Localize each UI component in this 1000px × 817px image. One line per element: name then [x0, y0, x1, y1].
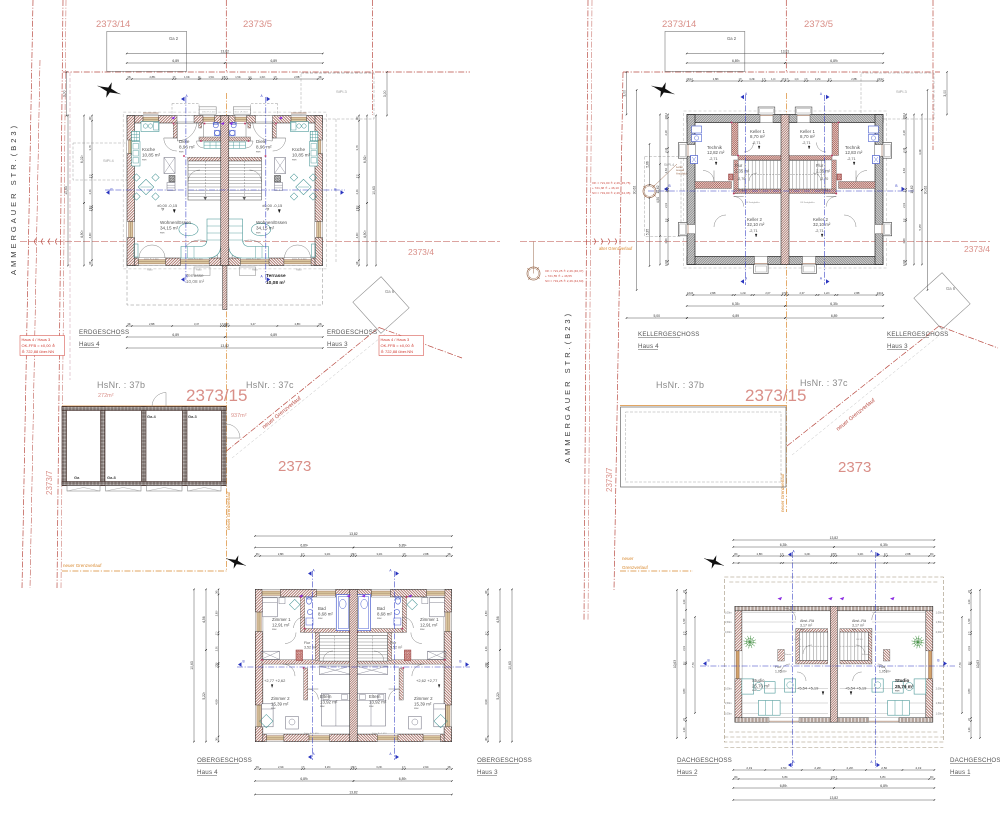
svg-text:Haus 3: Haus 3 — [477, 769, 498, 776]
svg-text:10,63: 10,63 — [64, 186, 68, 195]
svg-text:1,21¹: 1,21¹ — [968, 727, 971, 733]
svg-text:24|12: 24|12 — [664, 112, 668, 119]
svg-text:2,50: 2,50 — [881, 766, 887, 770]
svg-text:4,90¹: 4,90¹ — [88, 232, 92, 238]
svg-text:Ga.4: Ga.4 — [147, 414, 156, 419]
svg-text:Zimmer 1: Zimmer 1 — [272, 617, 291, 622]
svg-text:1,22¹: 1,22¹ — [824, 291, 830, 295]
svg-text:17¹: 17¹ — [804, 77, 808, 81]
svg-text:HsNr. : 37c: HsNr. : 37c — [246, 380, 294, 390]
svg-text:2,01: 2,01 — [683, 645, 686, 650]
svg-text:2,18: 2,18 — [902, 130, 906, 136]
svg-text:5,00: 5,00 — [653, 314, 660, 318]
svg-text:12,91 m²: 12,91 m² — [420, 622, 438, 627]
svg-text:12|24: 12|24 — [687, 291, 694, 295]
svg-text:B: B — [895, 184, 897, 188]
svg-text:2373/5: 2373/5 — [243, 19, 272, 30]
svg-text:3,29¹: 3,29¹ — [324, 552, 330, 556]
svg-text:36¹: 36¹ — [930, 552, 934, 556]
svg-text:11¹: 11¹ — [664, 218, 668, 222]
svg-text:Flur: Flur — [304, 641, 311, 645]
svg-text:FBH: FBH — [800, 629, 805, 631]
svg-text:937m²: 937m² — [231, 413, 247, 419]
svg-text:2,07: 2,07 — [800, 291, 806, 295]
svg-text:1,54¹: 1,54¹ — [208, 75, 214, 79]
svg-text:17¹: 17¹ — [738, 77, 742, 81]
svg-text:FBH: FBH — [420, 629, 425, 631]
svg-text:36¹: 36¹ — [355, 261, 359, 265]
svg-text:FBH: FBH — [292, 160, 297, 162]
svg-text:DACHGESCHOSS: DACHGESCHOSS — [950, 757, 1000, 764]
svg-text:Abst.-Rä: Abst.-Rä — [800, 619, 814, 623]
svg-text:2,00m: 2,00m — [936, 630, 943, 634]
svg-text:3,52 m²: 3,52 m² — [390, 646, 403, 650]
svg-text:24|12: 24|12 — [877, 77, 884, 81]
svg-text:6,89: 6,89 — [270, 333, 277, 337]
svg-text:6,89¹: 6,89¹ — [830, 59, 839, 63]
svg-text:OK Fertigkeller: OK Fertigkeller — [800, 201, 815, 204]
svg-text:B: B — [708, 658, 710, 662]
svg-text:4,56: 4,56 — [202, 616, 206, 623]
svg-text:B: B — [937, 658, 939, 662]
svg-text:10,08 m²: 10,08 m² — [186, 279, 205, 284]
svg-text:17¹: 17¹ — [902, 188, 906, 192]
svg-text:Haus 4: Haus 4 — [638, 343, 659, 350]
svg-text:4,90¹: 4,90¹ — [80, 230, 84, 239]
svg-text:3,47: 3,47 — [194, 322, 200, 326]
svg-text:Wohnen/Essen: Wohnen/Essen — [256, 220, 288, 225]
svg-text:6,35¹: 6,35¹ — [830, 302, 839, 306]
svg-text:2,01: 2,01 — [902, 202, 906, 208]
svg-text:2,94¹: 2,94¹ — [423, 765, 429, 769]
svg-text:12|24: 12|24 — [664, 259, 668, 266]
svg-text:StPl.4: StPl.4 — [103, 158, 114, 163]
svg-text:Studio: Studio — [752, 678, 765, 683]
svg-text:OK = 721,00 ≙ 2,46 (45,75): OK = 721,00 ≙ 2,46 (45,75) — [592, 181, 630, 185]
svg-text:2,01: 2,01 — [215, 646, 219, 652]
svg-text:3,29¹: 3,29¹ — [857, 552, 863, 556]
svg-text:1,0¹: 1,0¹ — [794, 77, 799, 81]
svg-text:B: B — [111, 187, 113, 191]
svg-text:KELLERGESCHOSS: KELLERGESCHOSS — [638, 331, 700, 338]
svg-text:6,89¹: 6,89¹ — [399, 777, 408, 781]
svg-text:36¹: 36¹ — [484, 737, 488, 741]
svg-text:4,50: 4,50 — [656, 197, 660, 203]
svg-text:2,94¹: 2,94¹ — [278, 765, 284, 769]
svg-text:FBH: FBH — [320, 706, 325, 708]
svg-text:36¹: 36¹ — [88, 261, 92, 265]
svg-text:36¹: 36¹ — [318, 322, 322, 326]
svg-text:6,89: 6,89 — [831, 314, 838, 318]
svg-text:7,76: 7,76 — [958, 662, 962, 668]
svg-text:2,88¹: 2,88¹ — [149, 322, 155, 326]
svg-text:2,35 m²: 2,35 m² — [735, 169, 750, 174]
svg-text:1,56¹: 1,56¹ — [683, 618, 686, 624]
svg-text:DACHGESCHOSS: DACHGESCHOSS — [677, 757, 732, 764]
svg-text:4,49: 4,49 — [664, 238, 668, 244]
svg-text:Flur: Flur — [775, 665, 782, 669]
svg-text:17¹: 17¹ — [355, 174, 359, 178]
svg-text:2,65¹: 2,65¹ — [215, 610, 219, 616]
svg-text:2,20¹: 2,20¹ — [814, 766, 821, 770]
svg-text:36¹: 36¹ — [127, 322, 131, 326]
svg-text:2,00m: 2,00m — [936, 687, 943, 691]
svg-text:1,05 m²: 1,05 m² — [775, 669, 787, 673]
svg-text:17¹: 17¹ — [226, 322, 230, 326]
svg-text:36¹: 36¹ — [734, 552, 738, 556]
svg-text:+2,77 +2,62: +2,77 +2,62 — [264, 678, 286, 683]
svg-text:13,82: 13,82 — [830, 796, 839, 800]
svg-text:Rollo: Rollo — [196, 269, 202, 272]
svg-text:32,10 m²: 32,10 m² — [747, 222, 765, 227]
svg-text:B: B — [334, 187, 336, 191]
svg-text:10,63: 10,63 — [190, 661, 194, 670]
svg-text:11¹: 11¹ — [968, 661, 971, 665]
svg-text:Dehn.Fu 1.004: Dehn.Fu 1.004 — [246, 258, 261, 260]
svg-text:Haus 4: Haus 4 — [197, 769, 218, 776]
svg-text:11¹: 11¹ — [902, 218, 906, 222]
svg-text:FBH: FBH — [256, 233, 261, 235]
svg-text:Dehn.Fu 1.010: Dehn.Fu 1.010 — [304, 733, 319, 735]
svg-text:3,00: 3,00 — [622, 90, 626, 97]
svg-text:SO = 719,25 ≙ 2,46 (44,60): SO = 719,25 ≙ 2,46 (44,60) — [545, 279, 583, 283]
svg-text:2373/14: 2373/14 — [96, 19, 130, 30]
svg-text:3,17 m²: 3,17 m² — [852, 624, 865, 628]
svg-text:8,68 m²: 8,68 m² — [318, 611, 333, 616]
svg-text:10,08 m²: 10,08 m² — [266, 280, 286, 286]
svg-text:ERDGESCHOSS: ERDGESCHOSS — [79, 329, 129, 336]
svg-text:4,90¹: 4,90¹ — [484, 699, 488, 705]
svg-text:3,76: 3,76 — [355, 145, 359, 151]
svg-text:3,85¹: 3,85¹ — [683, 688, 686, 694]
svg-text:neuer Grenzverlauf: neuer Grenzverlauf — [226, 491, 231, 530]
svg-text:Flur: Flur — [879, 665, 886, 669]
svg-text:neuer: neuer — [622, 556, 634, 561]
svg-text:8,68 m²: 8,68 m² — [377, 611, 392, 616]
svg-text:1,00m: 1,00m — [725, 712, 732, 716]
svg-text:36¹: 36¹ — [318, 75, 322, 79]
svg-text:4,90¹: 4,90¹ — [215, 699, 219, 705]
svg-text:6,89¹: 6,89¹ — [300, 543, 309, 547]
svg-text:17¹: 17¹ — [828, 77, 832, 81]
svg-text:1,50m: 1,50m — [725, 620, 732, 624]
svg-text:2,88¹: 2,88¹ — [294, 75, 300, 79]
svg-text:6,92¹: 6,92¹ — [363, 155, 367, 164]
svg-text:17¹: 17¹ — [353, 765, 357, 769]
svg-text:5,86: 5,86 — [645, 161, 649, 167]
svg-text:1,63¹: 1,63¹ — [259, 75, 265, 79]
svg-text:2,01: 2,01 — [968, 645, 971, 650]
svg-text:Dehn.Fu 0.000: Dehn.Fu 0.000 — [144, 258, 159, 260]
svg-text:6,35¹: 6,35¹ — [782, 775, 788, 779]
svg-text:6,89¹: 6,89¹ — [780, 784, 789, 788]
svg-text:2,88¹: 2,88¹ — [757, 552, 763, 556]
svg-text:3,00: 3,00 — [383, 90, 387, 97]
svg-text:3,29¹: 3,29¹ — [325, 765, 331, 769]
svg-text:1,54¹: 1,54¹ — [235, 75, 241, 79]
svg-text:Diele: Diele — [179, 139, 190, 144]
svg-text:36¹: 36¹ — [734, 775, 738, 779]
svg-text:36¹: 36¹ — [447, 552, 451, 556]
svg-text:-2,82: -2,82 — [820, 188, 828, 192]
svg-text:1,00m: 1,00m — [725, 611, 732, 615]
svg-text:17¹: 17¹ — [353, 552, 357, 556]
svg-text:17¹: 17¹ — [88, 207, 92, 211]
svg-text:-2,71: -2,71 — [749, 229, 758, 233]
svg-text:15,39 m²: 15,39 m² — [414, 701, 432, 706]
svg-text:FBH: FBH — [160, 233, 165, 235]
svg-text:17¹: 17¹ — [785, 77, 789, 81]
svg-text:11¹: 11¹ — [198, 75, 202, 79]
svg-text:2373/4: 2373/4 — [408, 247, 434, 257]
svg-text:Eltern: Eltern — [369, 694, 381, 699]
svg-text:OK FD: OK FD — [794, 639, 801, 641]
svg-text:24|12: 24|12 — [902, 112, 906, 119]
svg-text:FBH: FBH — [752, 690, 757, 692]
svg-text:Ga.8: Ga.8 — [107, 475, 116, 480]
svg-text:±0,00 -0,15: ±0,00 -0,15 — [262, 203, 283, 208]
svg-text:3,47: 3,47 — [250, 322, 256, 326]
svg-text:2,07: 2,07 — [765, 291, 771, 295]
svg-text:OK Fertigkeller: OK Fertigkeller — [745, 201, 760, 204]
svg-text:2,88¹: 2,88¹ — [905, 552, 911, 556]
svg-text:≙ 722,88 über.NN: ≙ 722,88 über.NN — [22, 349, 55, 354]
svg-text:6,89: 6,89 — [172, 333, 179, 337]
svg-text:FBH: FBH — [272, 629, 277, 631]
svg-text:2,88¹: 2,88¹ — [278, 552, 284, 556]
svg-text:AMMERGAUER STR.(B23): AMMERGAUER STR.(B23) — [563, 311, 572, 463]
svg-text:30,62: 30,62 — [633, 186, 637, 195]
svg-text:Flur: Flur — [816, 163, 824, 168]
svg-text:2,65¹: 2,65¹ — [484, 610, 488, 616]
svg-text:2373/7: 2373/7 — [605, 467, 614, 492]
svg-text:Haus 2: Haus 2 — [677, 769, 698, 776]
svg-text:13,82: 13,82 — [221, 49, 230, 53]
svg-text:Ga 6: Ga 6 — [385, 289, 395, 294]
svg-text:10,63: 10,63 — [976, 660, 980, 668]
svg-text:Bad: Bad — [377, 606, 385, 611]
svg-text:10,62: 10,62 — [656, 185, 660, 193]
svg-text:2373/15: 2373/15 — [186, 386, 247, 405]
svg-text:6,35¹: 6,35¹ — [880, 543, 889, 547]
svg-text:17¹: 17¹ — [785, 291, 789, 295]
svg-text:4,90¹: 4,90¹ — [355, 232, 359, 238]
svg-text:Ga.3: Ga.3 — [188, 414, 197, 419]
svg-text:Grenzverlauf: Grenzverlauf — [622, 565, 649, 570]
svg-text:36¹: 36¹ — [127, 75, 131, 79]
svg-text:+5,54 +5,19: +5,54 +5,19 — [845, 686, 867, 691]
svg-text:17¹: 17¹ — [780, 552, 784, 556]
svg-text:FBH: FBH — [369, 706, 374, 708]
svg-text:17¹: 17¹ — [968, 631, 971, 635]
svg-text:10,63: 10,63 — [673, 660, 677, 668]
svg-text:4,56: 4,56 — [496, 616, 500, 623]
svg-text:2,00m: 2,00m — [725, 630, 732, 634]
svg-text:1,0¹: 1,0¹ — [771, 77, 776, 81]
svg-text:17¹: 17¹ — [683, 631, 686, 635]
svg-text:AMMERGAUER STR.(B23): AMMERGAUER STR.(B23) — [9, 123, 18, 275]
svg-text:8,70 m²: 8,70 m² — [750, 134, 765, 139]
svg-text:alter Grenzverlauf: alter Grenzverlauf — [599, 246, 633, 251]
svg-text:Dehn.Fu 0.000: Dehn.Fu 0.000 — [292, 258, 307, 260]
svg-text:2,01: 2,01 — [355, 189, 359, 195]
svg-text:2,44: 2,44 — [664, 147, 668, 153]
svg-text:17¹: 17¹ — [762, 77, 766, 81]
svg-text:FBH: FBH — [895, 691, 900, 693]
svg-text:2373/7: 2373/7 — [45, 470, 54, 495]
svg-text:HsNr. : 37b: HsNr. : 37b — [656, 380, 704, 390]
svg-text:6,89: 6,89 — [270, 59, 277, 63]
svg-text:6,35¹: 6,35¹ — [732, 302, 741, 306]
svg-text:3,00: 3,00 — [943, 90, 947, 97]
svg-text:12,91 m²: 12,91 m² — [272, 622, 290, 627]
svg-text:ERDGESCHOSS: ERDGESCHOSS — [327, 329, 377, 336]
svg-text:2373/15: 2373/15 — [745, 386, 806, 405]
svg-text:6,35¹: 6,35¹ — [780, 543, 789, 547]
svg-text:25,76 m³: 25,76 m³ — [752, 684, 770, 689]
svg-text:+ 721,55 ≙ + 46,55: + 721,55 ≙ + 46,55 — [545, 274, 572, 278]
svg-text:+2,62 +2,77: +2,62 +2,77 — [416, 678, 438, 683]
svg-text:Haus 3: Haus 3 — [887, 343, 908, 350]
svg-text:OK-FFB = ±0,00 ≙: OK-FFB = ±0,00 ≙ — [22, 343, 56, 348]
svg-text:StPl.3: StPl.3 — [896, 89, 907, 94]
svg-text:Dehn.Fu 1.010: Dehn.Fu 1.010 — [372, 733, 387, 735]
svg-text:17¹: 17¹ — [301, 765, 305, 769]
svg-text:2,88¹: 2,88¹ — [851, 77, 857, 81]
svg-text:34,15 m²: 34,15 m² — [256, 226, 275, 231]
svg-text:KELLERGESCHOSS: KELLERGESCHOSS — [887, 331, 949, 338]
svg-text:25,76 m²: 25,76 m² — [895, 684, 914, 689]
svg-text:Terrasse: Terrasse — [266, 273, 286, 279]
svg-text:12,83 m²: 12,83 m² — [845, 150, 863, 155]
svg-text:OK = 721,25 ≙ 2,46 (46,37): OK = 721,25 ≙ 2,46 (46,37) — [545, 269, 583, 273]
svg-text:FBH: FBH — [377, 618, 382, 620]
svg-text:3,76: 3,76 — [88, 145, 92, 151]
svg-text:Dehn.Fu 1.004: Dehn.Fu 1.004 — [188, 258, 203, 260]
svg-text:10,62: 10,62 — [910, 185, 914, 193]
svg-text:12,82 m²: 12,82 m² — [707, 150, 725, 155]
svg-text:±0,00 -0,15: ±0,00 -0,15 — [157, 203, 178, 208]
svg-text:13,82: 13,82 — [830, 536, 839, 540]
svg-text:2373: 2373 — [838, 459, 871, 476]
svg-text:Haus 4 / Haus 3: Haus 4 / Haus 3 — [22, 337, 51, 342]
svg-text:17¹: 17¹ — [884, 552, 888, 556]
svg-text:13,92 m²: 13,92 m² — [320, 699, 338, 704]
svg-text:StPl.4: StPl.4 — [664, 162, 675, 167]
svg-text:Zimmer 2: Zimmer 2 — [414, 696, 433, 701]
svg-text:Anschluß: Anschluß — [676, 171, 688, 175]
svg-text:17¹: 17¹ — [664, 188, 668, 192]
svg-text:2,88¹: 2,88¹ — [149, 75, 155, 79]
svg-text:Rollo: Rollo — [147, 269, 153, 272]
svg-text:HsNr. : 37b: HsNr. : 37b — [97, 380, 145, 390]
svg-text:OBERGESCHOSS: OBERGESCHOSS — [477, 757, 532, 764]
svg-text:5,35¹: 5,35¹ — [918, 224, 922, 230]
svg-text:Haus 1: Haus 1 — [950, 769, 971, 776]
svg-text:6,89¹: 6,89¹ — [300, 777, 309, 781]
svg-text:Kamin: Kamin — [785, 654, 792, 656]
svg-text:3,00: 3,00 — [62, 90, 66, 97]
svg-text:13,81: 13,81 — [781, 49, 790, 53]
svg-text:5,22¹: 5,22¹ — [496, 691, 500, 700]
svg-text:Zimmer 1: Zimmer 1 — [420, 617, 439, 622]
svg-text:1,50m: 1,50m — [936, 620, 943, 624]
svg-text:1,56¹: 1,56¹ — [968, 618, 971, 624]
svg-text:Flur: Flur — [390, 641, 397, 645]
svg-text:2373: 2373 — [278, 458, 311, 475]
svg-text:Eltern: Eltern — [320, 694, 332, 699]
svg-text:11¹: 11¹ — [683, 661, 686, 665]
svg-text:11¹: 11¹ — [248, 75, 252, 79]
svg-text:Küche: Küche — [142, 147, 155, 152]
svg-text:2373/4: 2373/4 — [964, 244, 990, 254]
svg-text:17¹: 17¹ — [88, 174, 92, 178]
svg-text:2,88¹: 2,88¹ — [295, 322, 301, 326]
svg-text:2,01: 2,01 — [88, 189, 92, 195]
svg-text:8,70 m²: 8,70 m² — [800, 134, 815, 139]
svg-text:1,00m: 1,00m — [936, 611, 943, 615]
svg-text:B: B — [243, 659, 245, 663]
svg-text:6,89: 6,89 — [733, 314, 740, 318]
svg-text:2,44: 2,44 — [902, 147, 906, 153]
svg-text:Zimmer 2: Zimmer 2 — [271, 696, 290, 701]
svg-text:Kamin: Kamin — [862, 654, 869, 656]
svg-text:Terrasse: Terrasse — [186, 273, 204, 278]
svg-text:Ga: Ga — [74, 475, 80, 480]
svg-text:8,96 m²: 8,96 m² — [179, 145, 195, 150]
svg-text:1,63¹: 1,63¹ — [184, 75, 190, 79]
svg-text:6,89¹: 6,89¹ — [399, 543, 408, 547]
svg-text:1,21¹: 1,21¹ — [683, 599, 686, 605]
svg-text:SO = 719,00 ≙ 2,46 (44,35): SO = 719,00 ≙ 2,46 (44,35) — [592, 191, 630, 195]
svg-text:3,52 m²: 3,52 m² — [304, 646, 317, 650]
svg-text:Ga 2: Ga 2 — [727, 36, 737, 41]
svg-text:1,21¹: 1,21¹ — [683, 727, 686, 733]
svg-text:17¹: 17¹ — [224, 75, 228, 79]
svg-text:6,89¹: 6,89¹ — [880, 784, 889, 788]
svg-text:13,82: 13,82 — [349, 790, 358, 794]
svg-text:1,50m: 1,50m — [725, 701, 732, 705]
svg-text:2,50: 2,50 — [781, 766, 787, 770]
svg-text:36¹: 36¹ — [256, 552, 260, 556]
svg-text:OK-FFB = ±0,00 ≙: OK-FFB = ±0,00 ≙ — [381, 343, 415, 348]
svg-text:34,15 m²: 34,15 m² — [160, 226, 179, 231]
svg-text:FBH: FBH — [414, 708, 419, 710]
svg-text:4,49: 4,49 — [902, 238, 906, 244]
svg-text:17¹: 17¹ — [402, 765, 406, 769]
svg-text:6,89: 6,89 — [172, 59, 179, 63]
svg-text:3,85¹: 3,85¹ — [968, 688, 971, 694]
svg-text:32,10 m²: 32,10 m² — [813, 222, 831, 227]
svg-text:13,92 m²: 13,92 m² — [369, 699, 387, 704]
svg-text:Dehn.Fu 1.010: Dehn.Fu 1.010 — [202, 112, 216, 114]
svg-text:36¹: 36¹ — [88, 116, 92, 120]
svg-text:5,35: 5,35 — [645, 229, 649, 235]
svg-text:2,64: 2,64 — [664, 168, 668, 174]
svg-text:-2,71: -2,71 — [847, 157, 856, 161]
svg-text:FBH: FBH — [179, 152, 184, 154]
svg-text:17|17: 17|17 — [831, 775, 838, 779]
svg-text:1,00m: 1,00m — [936, 712, 943, 716]
svg-text:17¹: 17¹ — [301, 552, 305, 556]
svg-text:FBH: FBH — [271, 708, 276, 710]
svg-text:2373/5: 2373/5 — [804, 19, 833, 30]
svg-text:OBERGESCHOSS: OBERGESCHOSS — [197, 757, 252, 764]
svg-text:2,88¹: 2,88¹ — [423, 552, 429, 556]
svg-text:Ga 6: Ga 6 — [946, 286, 956, 291]
svg-text:2,18: 2,18 — [664, 130, 668, 136]
svg-text:Haus 4 / Haus 3: Haus 4 / Haus 3 — [381, 337, 410, 342]
